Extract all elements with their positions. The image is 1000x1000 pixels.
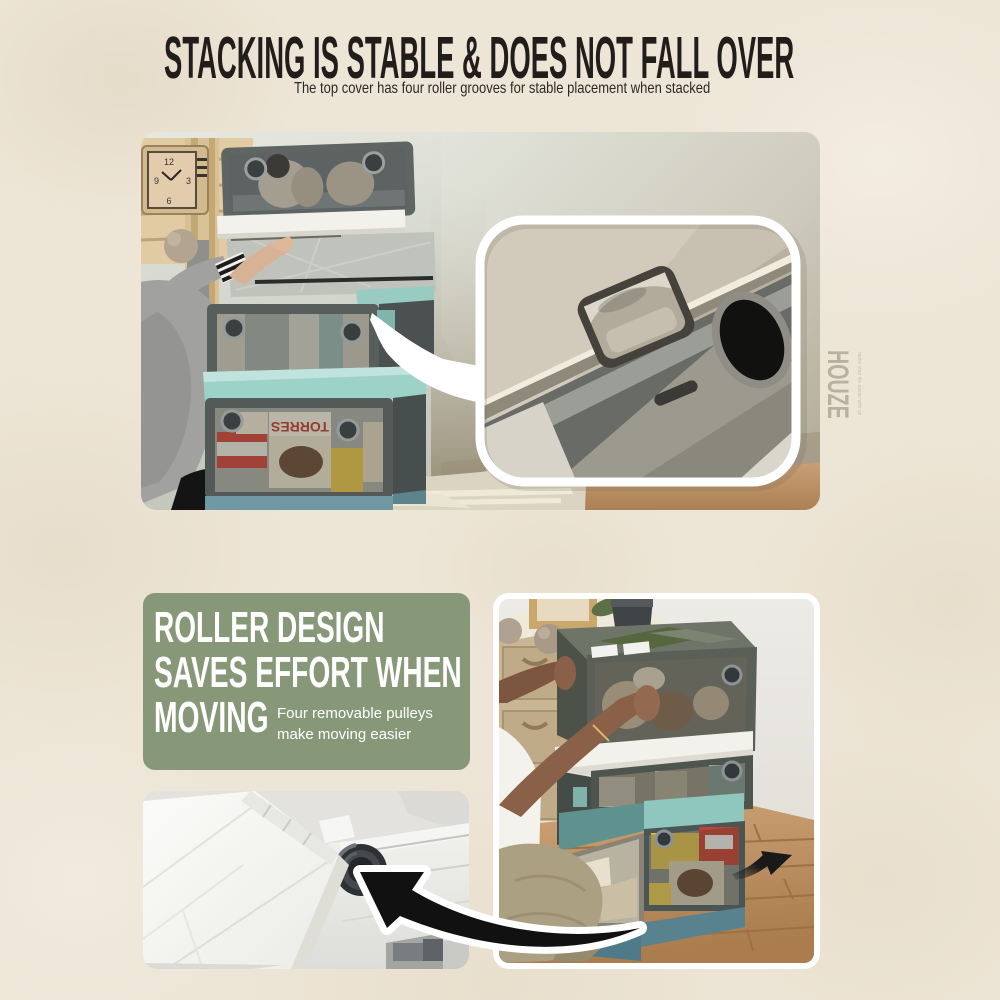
svg-text:9: 9 [154,176,159,186]
svg-text:12: 12 [164,157,174,167]
svg-text:6: 6 [166,196,171,206]
svg-text:3: 3 [186,176,191,186]
